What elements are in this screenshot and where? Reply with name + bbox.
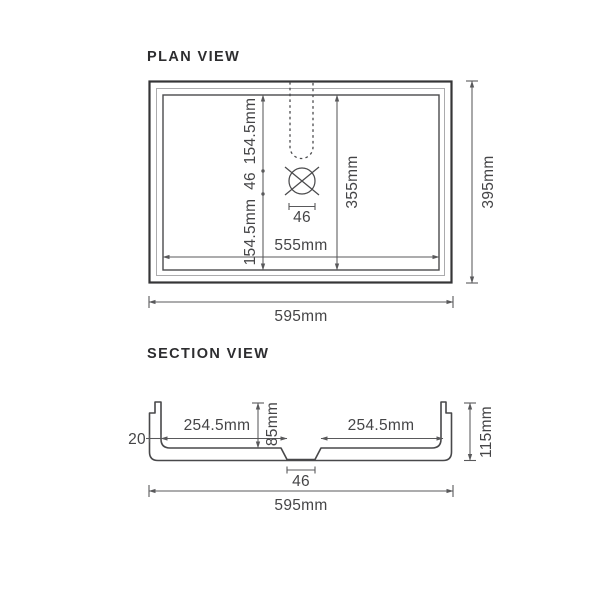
section-height-label: 115mm	[478, 406, 495, 458]
section-depth-label: 85mm	[264, 402, 281, 446]
plan-seg-bottom-label: 154.5mm	[242, 199, 259, 266]
section-rim-label: 20	[128, 431, 146, 448]
technical-drawing: PLAN VIEW 46 154.5mm 46 154.5mm 355mm 55…	[0, 0, 600, 600]
plan-seg-mid-label: 46	[242, 172, 259, 190]
section-left-half-label: 254.5mm	[184, 417, 251, 434]
section-view-title: SECTION VIEW	[147, 346, 269, 362]
section-right-half-label: 254.5mm	[348, 417, 415, 434]
plan-view-title: PLAN VIEW	[147, 49, 240, 65]
tap-hole-dashed-outline	[290, 82, 313, 159]
section-drain-label: 46	[292, 473, 310, 490]
plan-bowl-width-label: 555mm	[274, 237, 327, 254]
plan-left-dim-divider-2	[261, 192, 264, 195]
drain-symbol-cross	[285, 167, 319, 195]
plan-left-dim-divider-1	[261, 169, 264, 172]
plan-overall-width-label: 595mm	[274, 308, 327, 325]
plan-bowl-depth-label: 355mm	[344, 155, 361, 208]
plan-seg-top-label: 154.5mm	[242, 98, 259, 165]
plan-drain-dim-label: 46	[293, 209, 311, 226]
plan-overall-depth-label: 395mm	[480, 155, 497, 208]
section-overall-width-label: 595mm	[274, 497, 327, 514]
drawing-svg: PLAN VIEW 46 154.5mm 46 154.5mm 355mm 55…	[0, 0, 600, 600]
